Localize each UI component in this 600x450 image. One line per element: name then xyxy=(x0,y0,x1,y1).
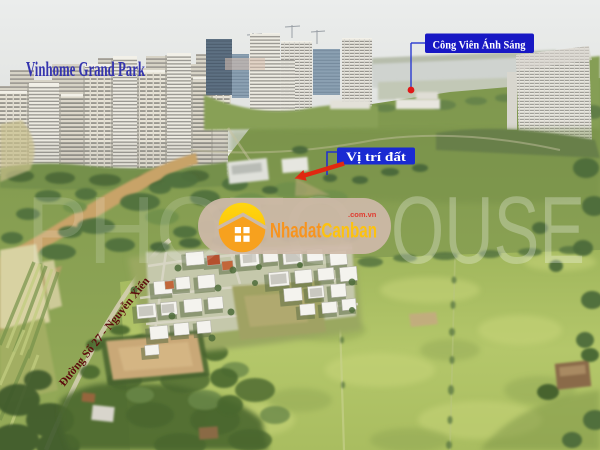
svg-text:Công Viên Ánh Sáng: Công Viên Ánh Sáng xyxy=(433,38,526,52)
svg-text:Vị trí đất: Vị trí đất xyxy=(346,150,407,164)
svg-text:.com.vn: .com.vn xyxy=(348,210,377,219)
svg-text:Vinhome Grand Park: Vinhome Grand Park xyxy=(26,57,145,81)
svg-text:NhadatCanban: NhadatCanban xyxy=(270,219,377,243)
svg-text:OUSE: OUSE xyxy=(391,177,585,284)
